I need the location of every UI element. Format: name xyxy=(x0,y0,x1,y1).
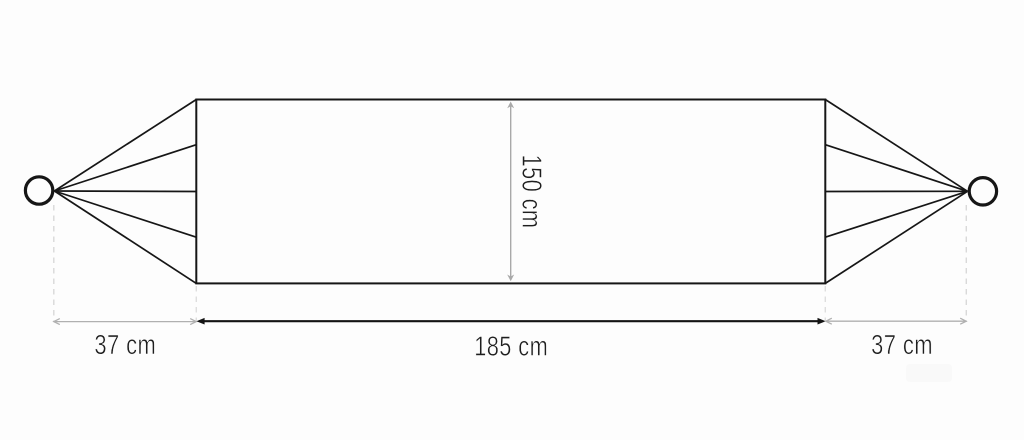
svg-text:185 cm: 185 cm xyxy=(474,331,548,362)
svg-text:37 cm: 37 cm xyxy=(94,330,156,361)
svg-text:150 cm: 150 cm xyxy=(516,155,547,229)
svg-text:37 cm: 37 cm xyxy=(871,330,933,361)
